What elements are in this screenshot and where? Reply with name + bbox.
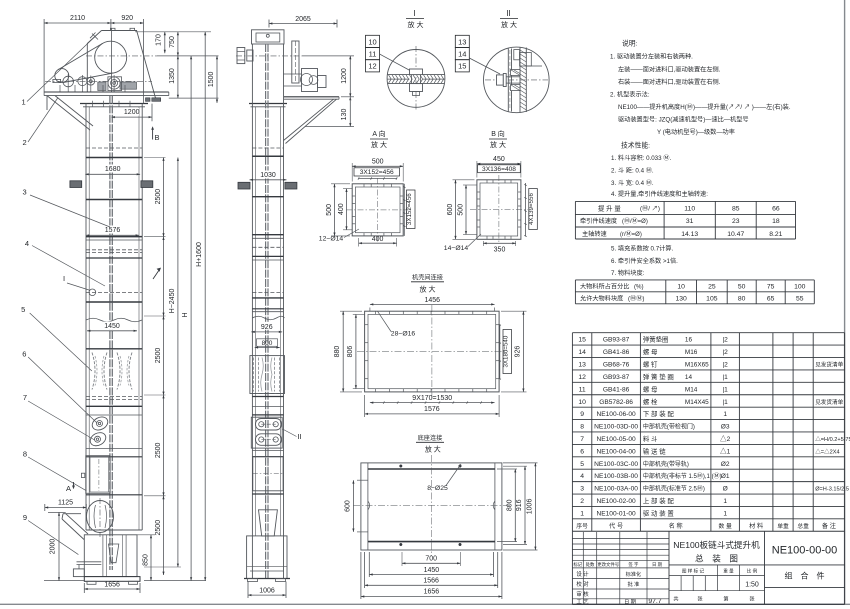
svg-text:放 大: 放 大 [490, 140, 506, 150]
svg-text:2500: 2500 [155, 189, 162, 205]
svg-text:8−Ø25: 8−Ø25 [427, 485, 448, 492]
svg-text:中部机壳(标准节 2.5Ⓜ): 中部机壳(标准节 2.5Ⓜ) [643, 484, 705, 493]
svg-text:14: 14 [685, 374, 693, 381]
svg-text:Ø: Ø [723, 483, 728, 493]
svg-text:23: 23 [732, 218, 740, 225]
svg-text:螺 栓: 螺 栓 [643, 397, 658, 406]
svg-text:1: 1 [723, 408, 727, 418]
svg-text:12: 12 [578, 374, 586, 381]
svg-text:放 大: 放 大 [501, 20, 517, 30]
svg-text:放 大: 放 大 [420, 285, 436, 295]
svg-text:输 送 链: 输 送 链 [643, 446, 666, 455]
svg-text:12: 12 [368, 62, 376, 71]
svg-text:Ø3: Ø3 [721, 421, 730, 431]
svg-text:1450: 1450 [104, 323, 120, 330]
svg-text:NE100-03D-00: NE100-03D-00 [594, 424, 638, 431]
svg-text:中部机壳(带检视门): 中部机壳(带检视门) [643, 422, 695, 431]
svg-text:10.47: 10.47 [727, 231, 744, 238]
svg-text:15: 15 [578, 337, 586, 344]
svg-text:数 量: 数 量 [719, 521, 732, 530]
svg-text:备 注: 备 注 [822, 521, 836, 530]
svg-text:NE100板链斗式提升机: NE100板链斗式提升机 [673, 539, 760, 551]
svg-text:926: 926 [261, 324, 273, 331]
svg-text:牵引件线速度: 牵引件线速度 [580, 216, 617, 225]
svg-text:500: 500 [326, 204, 333, 216]
svg-text:放 大: 放 大 [425, 445, 441, 455]
svg-text:单重: 单重 [777, 521, 789, 530]
svg-text:9: 9 [23, 513, 27, 522]
svg-text:8: 8 [580, 424, 584, 431]
svg-text:2500: 2500 [155, 520, 162, 536]
svg-text:2000: 2000 [50, 539, 57, 555]
svg-text:926: 926 [514, 346, 521, 358]
svg-text:14.13: 14.13 [681, 231, 698, 238]
svg-text:设 计: 设 计 [576, 570, 589, 578]
svg-text:3X136=408: 3X136=408 [482, 166, 516, 173]
svg-text:6: 6 [580, 448, 584, 455]
svg-text:66: 66 [772, 206, 780, 213]
svg-text:提 升 量: 提 升 量 [598, 204, 621, 213]
svg-text:1. 驱动装置分左装和右装两种.: 1. 驱动装置分左装和右装两种. [610, 52, 693, 61]
svg-text:(ⓂⓂ): (ⓂⓂ) [628, 294, 645, 303]
svg-text:11: 11 [579, 386, 586, 393]
svg-text:1656: 1656 [424, 588, 440, 595]
svg-text:14: 14 [578, 349, 586, 356]
svg-text:中部机壳(非标节 1.5Ⓜ),1 (Ⓜ): 中部机壳(非标节 1.5Ⓜ),1 (Ⓜ) [643, 471, 722, 480]
svg-text:1656: 1656 [104, 582, 120, 589]
svg-text:1200: 1200 [341, 68, 348, 84]
svg-text:130: 130 [675, 296, 687, 303]
svg-text:H−2450: H−2450 [169, 289, 176, 314]
svg-text:总重: 总重 [797, 521, 809, 530]
svg-text:NE100-06-00: NE100-06-00 [596, 411, 636, 418]
svg-text:弹 簧 垫 圈: 弹 簧 垫 圈 [643, 372, 674, 381]
svg-text:80: 80 [738, 296, 746, 303]
svg-text:1125: 1125 [58, 500, 73, 507]
svg-text:技术性能:: 技术性能: [621, 140, 650, 150]
svg-text:3: 3 [580, 486, 584, 493]
svg-text:850: 850 [143, 554, 150, 566]
svg-text:97.7: 97.7 [648, 598, 661, 605]
svg-text:弹簧垫圈: 弹簧垫圈 [643, 335, 669, 344]
svg-text:中部机壳(带导轨): 中部机壳(带导轨) [643, 459, 689, 468]
svg-text:左装——面对进料口,驱动装置在左侧.: 左装——面对进料口,驱动装置在左侧. [618, 65, 721, 74]
svg-text:放 大: 放 大 [371, 140, 387, 150]
svg-text:签 字: 签 字 [628, 561, 639, 568]
svg-text:1500: 1500 [208, 72, 215, 88]
svg-text:916: 916 [516, 499, 523, 511]
svg-text:标准化: 标准化 [626, 570, 642, 578]
svg-text:1350: 1350 [169, 68, 176, 84]
svg-text:7. 物料块度:: 7. 物料块度: [611, 268, 645, 277]
svg-text:7: 7 [580, 436, 584, 443]
svg-text:A 向: A 向 [372, 129, 385, 139]
svg-text:50: 50 [738, 284, 746, 291]
svg-text:△=△2X4: △=△2X4 [815, 447, 839, 455]
svg-text:组 合 件: 组 合 件 [785, 571, 825, 582]
svg-text:II: II [297, 432, 301, 441]
svg-text:B 向: B 向 [491, 129, 505, 139]
svg-text:1450: 1450 [424, 567, 440, 574]
svg-text:NE100-02-00: NE100-02-00 [596, 498, 636, 505]
svg-text:450: 450 [493, 156, 505, 163]
svg-text:13: 13 [458, 37, 466, 46]
svg-text:920: 920 [121, 15, 133, 22]
svg-text:2500: 2500 [155, 443, 162, 459]
svg-text:10: 10 [368, 37, 376, 46]
svg-text:7: 7 [23, 393, 27, 402]
svg-text:螺 钉: 螺 钉 [643, 360, 658, 369]
svg-text:1006: 1006 [259, 587, 275, 594]
svg-text:M14: M14 [685, 386, 698, 393]
svg-text:日 期: 日 期 [624, 599, 636, 606]
svg-text:15: 15 [458, 62, 466, 71]
svg-text:第: 第 [723, 595, 728, 603]
svg-text:3: 3 [23, 188, 27, 197]
svg-text:400: 400 [338, 203, 345, 215]
svg-text:8: 8 [23, 450, 27, 459]
svg-text:1200: 1200 [124, 109, 140, 116]
svg-text:2: 2 [23, 138, 27, 147]
svg-text:2065: 2065 [295, 16, 311, 23]
svg-text:|1: |1 [722, 371, 728, 381]
svg-text:1:50: 1:50 [745, 582, 759, 589]
svg-text:2500: 2500 [155, 348, 162, 364]
svg-text:1576: 1576 [105, 227, 121, 234]
svg-text:400: 400 [372, 236, 384, 243]
svg-text:1576: 1576 [424, 406, 440, 413]
svg-text:2110: 2110 [70, 15, 85, 22]
svg-text:75: 75 [767, 284, 775, 291]
svg-text:NE100-03C-00: NE100-03C-00 [594, 461, 638, 468]
svg-text:1. 料斗容积: 0.033 Ⓜ.: 1. 料斗容积: 0.033 Ⓜ. [611, 153, 671, 162]
svg-text:1: 1 [723, 507, 727, 517]
svg-text:右装——面对进料口,驱动装置在右侧.: 右装——面对进料口,驱动装置在右侧. [618, 77, 721, 86]
svg-text:M14X45: M14X45 [685, 399, 709, 406]
svg-text:(r/Ⓜ=Ø): (r/Ⓜ=Ø) [620, 229, 642, 238]
svg-text:Ø1: Ø1 [721, 470, 730, 480]
svg-text:10: 10 [677, 284, 685, 291]
svg-text:4X139=556: 4X139=556 [528, 193, 535, 225]
svg-text:代 号: 代 号 [609, 521, 623, 530]
svg-text:I: I [63, 274, 65, 283]
svg-text:日 期: 日 期 [652, 562, 663, 568]
svg-text:18: 18 [772, 218, 780, 225]
svg-text:说明:: 说明: [622, 38, 638, 48]
svg-text:(Ⓜ/ ↗): (Ⓜ/ ↗) [640, 204, 660, 213]
svg-text:B: B [154, 133, 159, 142]
svg-text:25: 25 [708, 284, 716, 291]
svg-text:△2: △2 [720, 433, 731, 443]
svg-text:4: 4 [25, 239, 29, 248]
svg-text:170: 170 [156, 34, 163, 46]
svg-text:|2: |2 [722, 334, 728, 344]
svg-text:张: 张 [697, 595, 703, 603]
svg-text:M16X65: M16X65 [685, 362, 709, 369]
svg-text:NE100-05-00: NE100-05-00 [596, 436, 636, 443]
svg-text:处数: 处数 [586, 561, 595, 568]
svg-text:3. 斗 宽: 0.4 Ⓜ.: 3. 斗 宽: 0.4 Ⓜ. [611, 178, 654, 187]
svg-text:3X180=540: 3X180=540 [502, 335, 509, 367]
svg-text:|2: |2 [722, 359, 728, 369]
svg-text:NE100——提升机高度H(Ⓜ)——提升量(↗↗/ ↗ )—: NE100——提升机高度H(Ⓜ)——提升量(↗↗/ ↗ )——左(右)装. [618, 102, 791, 111]
svg-text:11: 11 [369, 50, 377, 59]
svg-text:13: 13 [578, 362, 586, 369]
svg-text:放 大: 放 大 [408, 20, 424, 30]
svg-text:350: 350 [494, 247, 506, 254]
svg-text:比 例: 比 例 [747, 568, 758, 575]
svg-text:105: 105 [706, 296, 718, 303]
svg-text:△=H/0.2+5.75: △=H/0.2+5.75 [815, 435, 850, 443]
svg-text:100: 100 [794, 284, 806, 291]
svg-text:校 对: 校 对 [576, 580, 589, 588]
svg-text:1680: 1680 [105, 166, 121, 173]
svg-text:6: 6 [22, 350, 26, 359]
svg-text:5: 5 [21, 305, 25, 314]
svg-text:底座连接: 底座连接 [418, 433, 443, 442]
svg-text:张: 张 [749, 595, 755, 603]
svg-text:750: 750 [169, 36, 176, 48]
svg-text:3X152=456: 3X152=456 [406, 193, 413, 225]
svg-text:允许大物料块度: 允许大物料块度 [580, 294, 623, 303]
svg-text:GB93-87: GB93-87 [603, 337, 630, 344]
svg-text:700: 700 [425, 556, 437, 563]
svg-text:1030: 1030 [260, 172, 276, 179]
svg-text:4: 4 [580, 473, 584, 480]
svg-text:NE100-00-00: NE100-00-00 [772, 545, 837, 557]
svg-text:5. 填充系数按 0.7计算.: 5. 填充系数按 0.7计算. [611, 244, 674, 253]
svg-text:Ø=H-3.15/2.5: Ø=H-3.15/2.5 [815, 485, 849, 493]
svg-text:GB93-87: GB93-87 [603, 374, 630, 381]
svg-text:II: II [506, 9, 510, 18]
svg-text:9X170=1530: 9X170=1530 [412, 395, 452, 402]
svg-text:14: 14 [458, 50, 466, 59]
svg-text:55: 55 [796, 296, 804, 303]
svg-text:H: H [182, 312, 189, 317]
svg-text:2: 2 [580, 498, 584, 505]
svg-text:M16: M16 [685, 349, 698, 356]
svg-text:1: 1 [22, 98, 26, 107]
svg-text:见发货清单: 见发货清单 [815, 398, 843, 406]
svg-text:GB68-76: GB68-76 [603, 362, 630, 369]
svg-text:800: 800 [262, 340, 273, 347]
svg-text:|2: |2 [722, 346, 728, 356]
svg-text:下 部 装 配: 下 部 装 配 [643, 409, 674, 418]
svg-text:(%): (%) [634, 284, 644, 291]
svg-text:2. 斗 距: 0.4 Ⓜ.: 2. 斗 距: 0.4 Ⓜ. [611, 166, 654, 175]
svg-text:驱 动 装 置: 驱 动 装 置 [643, 508, 674, 517]
svg-text:批 准: 批 准 [627, 580, 639, 588]
svg-text:3X152=456: 3X152=456 [360, 169, 394, 176]
svg-text:主轴转速: 主轴转速 [582, 229, 607, 238]
svg-text:|1: |1 [722, 383, 728, 393]
svg-text:1: 1 [723, 495, 727, 505]
svg-text:GB41-86: GB41-86 [603, 349, 630, 356]
svg-text:见发货清单: 见发货清单 [815, 361, 843, 369]
svg-text:880: 880 [334, 346, 341, 358]
svg-text:螺 母: 螺 母 [643, 347, 658, 356]
svg-text:500: 500 [372, 159, 384, 166]
svg-text:800: 800 [507, 499, 514, 511]
svg-text:图 样 标 记: 图 样 标 记 [682, 568, 705, 575]
svg-text:Ø2: Ø2 [721, 458, 730, 468]
svg-text:85: 85 [732, 206, 740, 213]
svg-text:材 料: 材 料 [749, 521, 763, 530]
svg-text:NE100-03B-00: NE100-03B-00 [594, 473, 638, 480]
svg-text:12−Ø14: 12−Ø14 [319, 236, 344, 243]
svg-text:名 称: 名 称 [669, 521, 683, 530]
svg-text:600: 600 [447, 204, 454, 216]
svg-text:1456: 1456 [424, 297, 440, 304]
svg-text:16: 16 [685, 337, 693, 344]
svg-text:I: I [413, 9, 415, 18]
svg-text:8.21: 8.21 [769, 231, 782, 238]
svg-text:NE100-01-00: NE100-01-00 [596, 510, 636, 517]
svg-text:Y (电动机型号)—级数—功率: Y (电动机型号)—级数—功率 [657, 127, 735, 136]
svg-text:1006: 1006 [526, 499, 533, 515]
svg-text:14−Ø14: 14−Ø14 [444, 245, 469, 252]
svg-text:|1: |1 [722, 396, 728, 406]
svg-text:更改文件号: 更改文件号 [597, 561, 620, 568]
svg-text:4. 提升量,牵引件线速度和主轴转速:: 4. 提升量,牵引件线速度和主轴转速: [611, 189, 708, 198]
svg-text:65: 65 [767, 296, 775, 303]
svg-text:10: 10 [578, 399, 586, 406]
svg-text:H+1600: H+1600 [196, 242, 203, 267]
svg-text:5: 5 [580, 461, 584, 468]
svg-text:上 部 装 配: 上 部 装 配 [643, 496, 674, 505]
svg-text:螺 母: 螺 母 [643, 384, 658, 393]
svg-text:9: 9 [580, 411, 584, 418]
svg-text:GB41-86: GB41-86 [603, 386, 630, 393]
svg-text:500: 500 [458, 204, 465, 216]
svg-text:工 艺: 工 艺 [576, 598, 589, 606]
svg-text:总 装 图: 总 装 图 [695, 553, 738, 565]
svg-text:NE100-04-00: NE100-04-00 [596, 448, 636, 455]
svg-text:28−Ø16: 28−Ø16 [391, 331, 416, 338]
svg-text:标记: 标记 [573, 561, 582, 568]
svg-text:(Ⓜ/Ⓜ=Ø): (Ⓜ/Ⓜ=Ø) [622, 216, 648, 225]
svg-text:1: 1 [580, 510, 584, 517]
svg-text:6. 牵引件安全系数 >1倍.: 6. 牵引件安全系数 >1倍. [611, 256, 678, 265]
svg-text:806: 806 [347, 346, 354, 358]
svg-text:31: 31 [686, 218, 694, 225]
svg-text:600: 600 [344, 500, 351, 512]
svg-text:重 量: 重 量 [723, 568, 734, 575]
svg-text:1566: 1566 [423, 578, 439, 585]
svg-text:序号: 序号 [576, 521, 588, 530]
svg-text:大物料所占百分比: 大物料所占百分比 [580, 282, 630, 291]
svg-text:共: 共 [673, 595, 678, 603]
svg-text:NE100-03A-00: NE100-03A-00 [594, 486, 638, 493]
svg-text:机壳间连接: 机壳间连接 [412, 273, 443, 282]
svg-text:驱动装置型号: JZQ(减速机型号)—速比—机型号: 驱动装置型号: JZQ(减速机型号)—速比—机型号 [618, 115, 749, 124]
svg-text:△1: △1 [720, 445, 731, 455]
svg-text:料 斗: 料 斗 [643, 434, 658, 443]
svg-text:110: 110 [684, 206, 695, 213]
svg-text:A: A [66, 484, 71, 493]
svg-text:2. 机型表示法:: 2. 机型表示法: [610, 90, 650, 99]
svg-text:130: 130 [341, 109, 348, 121]
svg-text:GB5782-86: GB5782-86 [599, 399, 633, 406]
